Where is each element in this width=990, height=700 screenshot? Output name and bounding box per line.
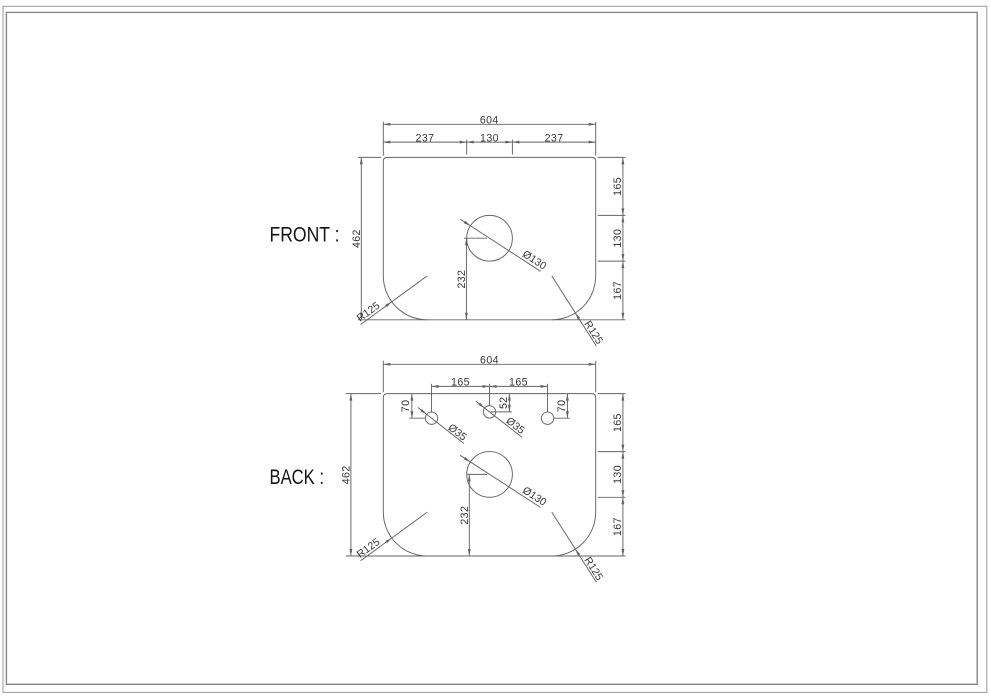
- svg-text:462: 462: [351, 229, 363, 248]
- svg-text:R125: R125: [355, 536, 383, 561]
- svg-text:Ø35: Ø35: [446, 422, 469, 444]
- svg-text:R125: R125: [581, 555, 605, 583]
- svg-text:Ø130: Ø130: [520, 248, 548, 272]
- svg-text:165: 165: [451, 377, 470, 389]
- svg-text:70: 70: [556, 400, 568, 413]
- svg-text:FRONT :: FRONT :: [270, 223, 340, 247]
- svg-text:165: 165: [612, 413, 624, 432]
- svg-text:237: 237: [545, 132, 564, 144]
- svg-text:232: 232: [456, 270, 468, 289]
- svg-text:165: 165: [509, 377, 528, 389]
- svg-text:462: 462: [341, 465, 353, 484]
- svg-text:70: 70: [400, 400, 412, 413]
- svg-text:BACK :: BACK :: [270, 465, 325, 489]
- svg-text:165: 165: [612, 177, 624, 196]
- svg-text:604: 604: [480, 115, 499, 127]
- svg-text:167: 167: [612, 517, 624, 536]
- svg-text:52: 52: [498, 396, 510, 409]
- svg-text:R125: R125: [355, 300, 383, 325]
- svg-text:130: 130: [480, 132, 499, 144]
- svg-text:R125: R125: [581, 319, 605, 347]
- svg-text:167: 167: [612, 281, 624, 300]
- svg-text:237: 237: [416, 132, 435, 144]
- svg-text:130: 130: [612, 229, 624, 248]
- svg-text:Ø35: Ø35: [504, 415, 527, 437]
- svg-text:130: 130: [612, 465, 624, 484]
- svg-text:232: 232: [459, 506, 471, 525]
- svg-text:604: 604: [480, 355, 499, 367]
- svg-text:Ø130: Ø130: [520, 484, 548, 508]
